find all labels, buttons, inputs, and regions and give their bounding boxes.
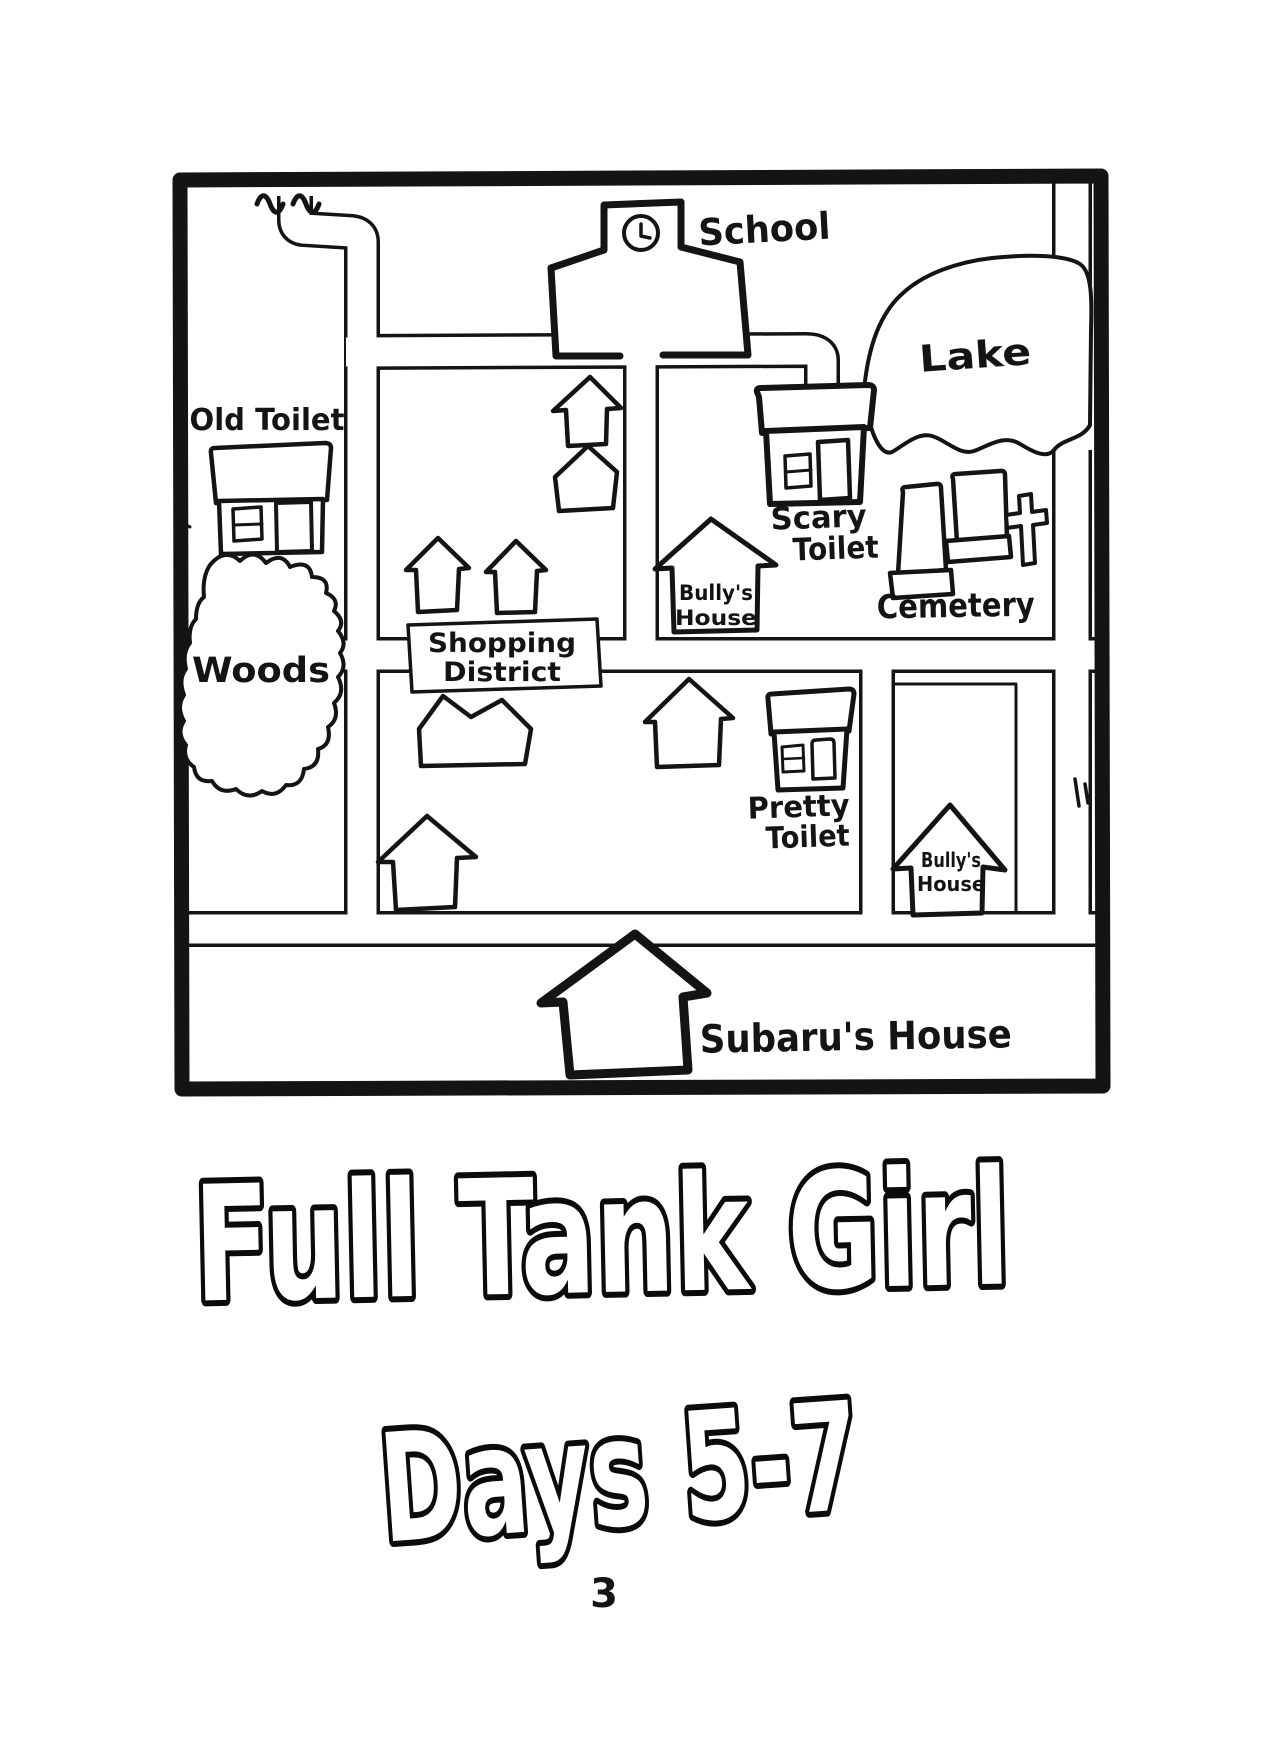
bullys-house-east-label-line2: House xyxy=(917,872,985,896)
bullys-house-north-label-line2: House xyxy=(675,606,757,630)
shopping-district-label-line2: District xyxy=(443,657,561,688)
scary-toilet-label-line2: Toilet xyxy=(792,530,879,569)
cemetery-gravestone-1 xyxy=(898,484,946,574)
pretty-toilet-label-line2: Toilet xyxy=(765,819,850,857)
lake-label: Lake xyxy=(918,330,1033,381)
bullys-house-east-label-line1: Bully's xyxy=(921,848,981,872)
scary-toilet-building xyxy=(757,385,874,504)
gravestone-base xyxy=(946,536,1011,562)
subarus-house-label: Subaru's House xyxy=(699,1012,1012,1062)
cemetery-label: Cemetery xyxy=(876,585,1035,627)
title-line1: Full Tank Girl xyxy=(192,1134,1012,1338)
door-icon xyxy=(276,502,312,552)
door-icon xyxy=(818,440,850,500)
title-line2: Days 5-7 xyxy=(374,1371,865,1578)
comic-map-page: School Lake Old Toilet Woods Shopping Di… xyxy=(0,0,1280,1741)
door-icon xyxy=(812,739,835,779)
old-toilet-label: Old Toilet xyxy=(190,403,345,438)
pretty-toilet-building xyxy=(768,689,854,790)
woods-label: Woods xyxy=(192,651,330,691)
page-number: 3 xyxy=(590,1571,618,1617)
bullys-house-north-label-line1: Bully's xyxy=(679,581,753,605)
shopping-district-label-line1: Shopping xyxy=(428,628,576,659)
school-label: School xyxy=(697,205,831,255)
cemetery-gravestone-2 xyxy=(952,471,1007,542)
old-toilet-building xyxy=(211,443,331,554)
